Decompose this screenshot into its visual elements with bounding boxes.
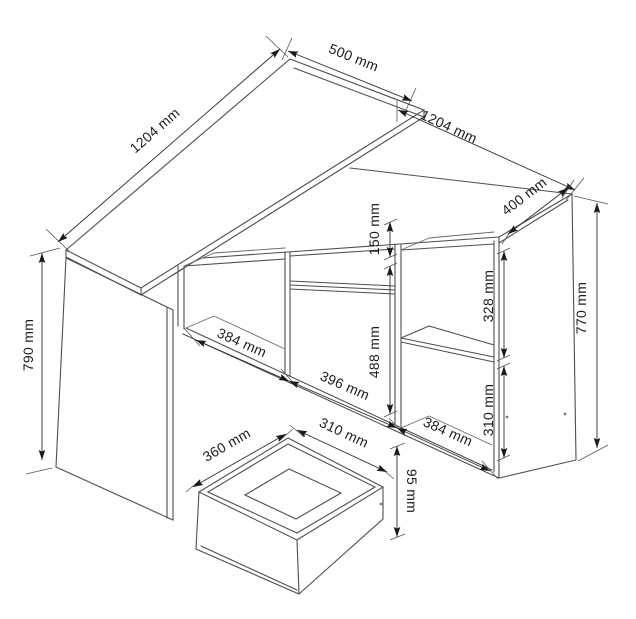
dim-drawer-depth-label: 360 mm (200, 425, 253, 465)
dim-left-compartment-width-label: 384 mm (215, 325, 269, 361)
dim-lower-compartment-height-label: 310 mm (480, 384, 496, 436)
dim-desk-length: 1204 mm (46, 36, 288, 252)
dim-desk-height-label: 790 mm (20, 319, 36, 371)
dim-drawer-width-label: 310 mm (317, 414, 371, 451)
dim-drawer-box-height: 95 mm (390, 443, 420, 540)
dim-drawer-box-height-label: 95 mm (404, 469, 420, 513)
furniture-dimension-diagram: 1204 mm 500 mm 1204 mm 400 mm 770 mm 790… (0, 0, 636, 619)
dim-cabinet-length-label: 1204 mm (418, 106, 480, 146)
dim-door-width-label: 396 mm (318, 368, 372, 404)
diagram-canvas: 1204 mm 500 mm 1204 mm 400 mm 770 mm 790… (0, 0, 636, 619)
dim-drawer-front-height: 150 mm (366, 203, 397, 260)
dim-cabinet-height: 770 mm (573, 196, 608, 461)
dim-desk-height: 790 mm (20, 248, 60, 474)
dim-door-height-label: 488 mm (366, 326, 382, 378)
dim-desk-length-label: 1204 mm (127, 104, 183, 156)
dim-drawer-depth: 360 mm (186, 425, 293, 492)
dim-lower-compartment-height: 310 mm (480, 363, 510, 461)
dim-right-compartment-width-label: 384 mm (421, 413, 475, 449)
desk-top-outline (66, 59, 424, 295)
dim-upper-compartment-height: 328 mm (480, 248, 510, 361)
dim-upper-compartment-height-label: 328 mm (480, 270, 496, 322)
desk-side-panel (56, 258, 173, 520)
drawer-detail-outline (196, 438, 383, 594)
cabinet-shelf (401, 326, 494, 362)
dim-cabinet-height-label: 770 mm (573, 282, 589, 334)
dim-drawer-front-height-label: 150 mm (366, 203, 382, 255)
